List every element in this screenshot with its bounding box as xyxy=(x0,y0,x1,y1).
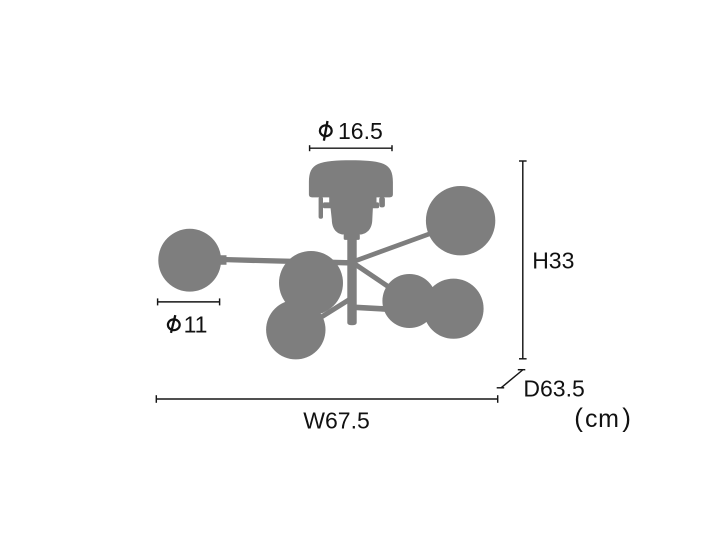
svg-text:11: 11 xyxy=(184,312,208,338)
svg-text:H33: H33 xyxy=(532,247,574,273)
svg-text:D63.5: D63.5 xyxy=(523,375,584,401)
svg-text:cm: cm xyxy=(585,405,620,433)
svg-text:W67.5: W67.5 xyxy=(303,407,369,433)
svg-text:16.5: 16.5 xyxy=(338,118,383,144)
svg-text:(: ( xyxy=(574,403,583,433)
svg-text:): ) xyxy=(622,403,631,433)
